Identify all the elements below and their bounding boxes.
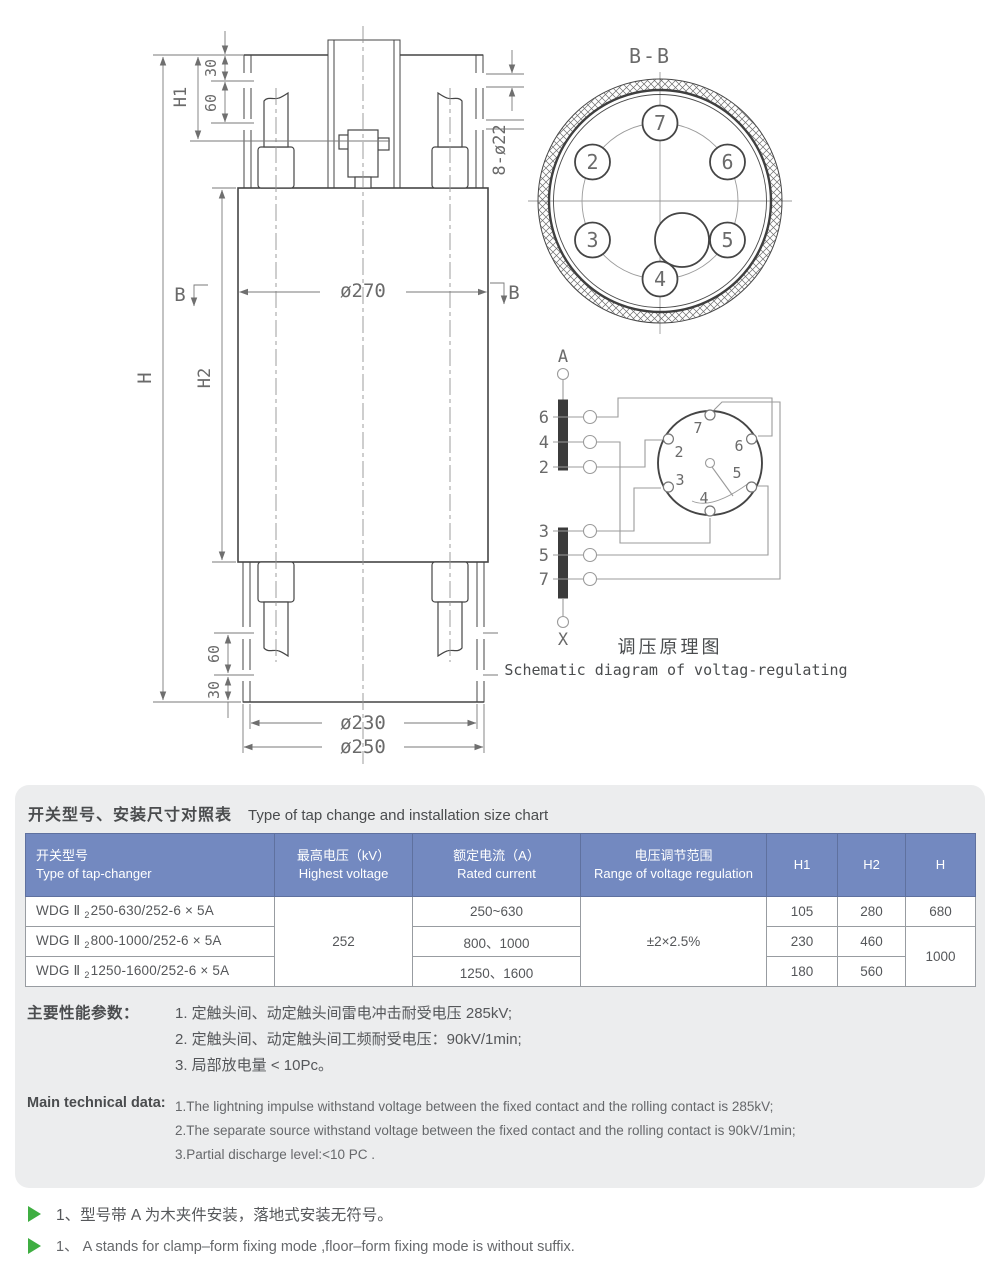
tap-label: 3 <box>539 522 549 542</box>
dim-bottom60-label: 60 <box>205 645 223 663</box>
contact-number: 7 <box>654 111 666 135</box>
note-en: 1、 A stands for clamp–form fixing mode ,… <box>28 1235 575 1256</box>
table-title-en: Type of tap change and installation size… <box>248 807 548 824</box>
green-triangle-icon <box>28 1206 41 1222</box>
datasheet-page: H H1 30 60 8-ø22 H2 ø270 <box>0 0 1000 1276</box>
terminal-x-label: X <box>558 630 569 650</box>
lower-winding <box>559 528 568 598</box>
header-type-en: Type of tap-changer <box>36 865 268 883</box>
technical-section: Main technical data: 1.The lightning imp… <box>27 1095 796 1167</box>
section-b-right-label: B <box>508 282 519 304</box>
header-current: 额定电流（A） Rated current <box>413 834 581 897</box>
dim-top30-label: 30 <box>202 59 220 77</box>
selector-number: 5 <box>732 464 741 482</box>
header-range: 电压调节范围 Range of voltage regulation <box>581 834 767 897</box>
header-current-en: Rated current <box>419 865 574 883</box>
selector-number: 3 <box>675 471 684 489</box>
drive-mechanism <box>339 130 389 188</box>
dim-dia270-label: ø270 <box>340 280 386 302</box>
note-zh: 1、型号带 A 为木夹件安装，落地式安装无符号。 <box>28 1203 393 1225</box>
dim-holes-label: 8-ø22 <box>490 124 510 175</box>
dim-h2-label: H2 <box>195 368 215 388</box>
moving-contact-roller <box>655 213 709 267</box>
h1-cell: 105 <box>767 897 838 927</box>
model-rest: 800-1000/252-6 × 5A <box>91 933 222 948</box>
green-triangle-icon <box>28 1238 41 1254</box>
dim-bottom30-label: 30 <box>205 681 223 699</box>
spec-panel: 开关型号、安装尺寸对照表 Type of tap change and inst… <box>15 785 985 1188</box>
technical-drawing: H H1 30 60 8-ø22 H2 ø270 <box>0 0 1000 780</box>
tap-label: 7 <box>539 570 549 590</box>
model-cell: WDG Ⅱ2250-630/252-6 × 5A <box>26 897 275 927</box>
h1-cell: 180 <box>767 957 838 987</box>
header-type: 开关型号 Type of tap-changer <box>26 834 275 897</box>
h2-cell: 460 <box>838 927 906 957</box>
model-rest: 250-630/252-6 × 5A <box>91 903 214 918</box>
dim-top60-label: 60 <box>202 94 220 112</box>
dim-dia250-label: ø250 <box>340 736 386 758</box>
header-voltage: 最高电压（kV） Highest voltage <box>275 834 413 897</box>
upper-winding <box>559 400 568 470</box>
tap-label: 2 <box>539 458 549 478</box>
model-sub: 2 <box>84 970 89 980</box>
terminal-a-label: A <box>558 347 568 367</box>
technical-item: 3.Partial discharge level:<10 PC . <box>175 1143 796 1167</box>
technical-item: 2.The separate source withstand voltage … <box>175 1119 796 1143</box>
current-cell: 1250、1600 <box>413 957 581 987</box>
header-h1: H1 <box>767 834 838 897</box>
selector: 7 2 6 3 5 4 <box>658 410 762 516</box>
selector-number: 7 <box>693 419 702 437</box>
h-cell: 1000 <box>906 927 976 987</box>
header-h: H <box>906 834 976 897</box>
selector-number: 2 <box>674 443 683 461</box>
h-cell: 680 <box>906 897 976 927</box>
header-voltage-en: Highest voltage <box>281 865 406 883</box>
current-cell: 250~630 <box>413 897 581 927</box>
performance-items: 1. 定触头间、动定触头间雷电冲击耐受电压 285kV; 2. 定触头间、动定触… <box>175 1001 522 1079</box>
technical-items: 1.The lightning impulse withstand voltag… <box>175 1095 796 1167</box>
model-cell: WDG Ⅱ2800-1000/252-6 × 5A <box>26 927 275 957</box>
table-row: WDG Ⅱ2800-1000/252-6 × 5A 800、1000 230 4… <box>26 927 976 957</box>
h2-cell: 280 <box>838 897 906 927</box>
performance-item: 1. 定触头间、动定触头间雷电冲击耐受电压 285kV; <box>175 1001 522 1027</box>
voltage-cell: 252 <box>275 897 413 987</box>
selector-number: 4 <box>699 489 708 507</box>
section-b-left-label: B <box>174 284 185 306</box>
tap-label: 5 <box>539 546 549 566</box>
model-prefix: WDG Ⅱ <box>36 963 80 978</box>
schematic-drawing: A X 6 4 2 3 5 <box>504 347 847 679</box>
model-sub: 2 <box>84 910 89 920</box>
front-view-drawing: H H1 30 60 8-ø22 H2 ø270 <box>134 26 524 764</box>
header-row: 开关型号 Type of tap-changer 最高电压（kV） Highes… <box>26 834 976 897</box>
schematic-caption-en: Schematic diagram of voltag-regulating <box>504 661 847 679</box>
model-sub: 2 <box>84 940 89 950</box>
dim-h-label: H <box>134 372 156 383</box>
h2-cell: 560 <box>838 957 906 987</box>
dim-h1-label: H1 <box>171 87 191 107</box>
dim-dia230-label: ø230 <box>340 712 386 734</box>
selector-number: 6 <box>734 437 743 455</box>
table-row: WDG Ⅱ2250-630/252-6 × 5A 252 250~630 ±2×… <box>26 897 976 927</box>
contact-number: 4 <box>654 267 666 291</box>
tap-label: 6 <box>539 408 549 428</box>
contact-number: 6 <box>721 150 733 174</box>
header-range-en: Range of voltage regulation <box>587 865 760 883</box>
schematic-caption-zh: 调压原理图 <box>618 637 723 657</box>
model-prefix: WDG Ⅱ <box>36 903 80 918</box>
note-en-text: 1、 A stands for clamp–form fixing mode ,… <box>56 1235 575 1256</box>
header-range-zh: 电压调节范围 <box>587 847 760 865</box>
technical-item: 1.The lightning impulse withstand voltag… <box>175 1095 796 1119</box>
header-voltage-zh: 最高电压（kV） <box>281 847 406 865</box>
technical-label: Main technical data: <box>27 1095 175 1167</box>
header-h2: H2 <box>838 834 906 897</box>
table-title-zh: 开关型号、安装尺寸对照表 <box>28 801 232 825</box>
model-prefix: WDG Ⅱ <box>36 933 80 948</box>
model-rest: 1250-1600/252-6 × 5A <box>91 963 230 978</box>
table-row: WDG Ⅱ21250-1600/252-6 × 5A 1250、1600 180… <box>26 957 976 987</box>
dimensions: H H1 30 60 8-ø22 H2 ø270 <box>134 31 524 758</box>
contact-number: 5 <box>721 228 733 252</box>
header-type-zh: 开关型号 <box>36 847 268 865</box>
performance-section: 主要性能参数： 1. 定触头间、动定触头间雷电冲击耐受电压 285kV; 2. … <box>27 1001 522 1079</box>
performance-item: 2. 定触头间、动定触头间工频耐受电压：90kV/1min; <box>175 1027 522 1053</box>
section-bb-title: B-B <box>629 44 671 68</box>
header-current-zh: 额定电流（A） <box>419 847 574 865</box>
performance-item: 3. 局部放电量 < 10Pc。 <box>175 1053 522 1079</box>
current-cell: 800、1000 <box>413 927 581 957</box>
tap-label: 4 <box>539 433 549 453</box>
spec-table-wrap: 开关型号 Type of tap-changer 最高电压（kV） Highes… <box>25 833 975 987</box>
h1-cell: 230 <box>767 927 838 957</box>
performance-label: 主要性能参数： <box>27 1001 175 1079</box>
section-bb-drawing: B-B 7 2 6 3 5 <box>528 44 792 334</box>
note-zh-text: 1、型号带 A 为木夹件安装，落地式安装无符号。 <box>56 1203 393 1225</box>
model-cell: WDG Ⅱ21250-1600/252-6 × 5A <box>26 957 275 987</box>
contact-number: 2 <box>586 150 598 174</box>
tap-labels: 6 4 2 3 5 7 <box>539 408 549 590</box>
contact-number: 3 <box>586 228 598 252</box>
spec-table: 开关型号 Type of tap-changer 最高电压（kV） Highes… <box>25 833 976 987</box>
table-title: 开关型号、安装尺寸对照表 Type of tap change and inst… <box>28 801 548 825</box>
range-cell: ±2×2.5% <box>581 897 767 987</box>
